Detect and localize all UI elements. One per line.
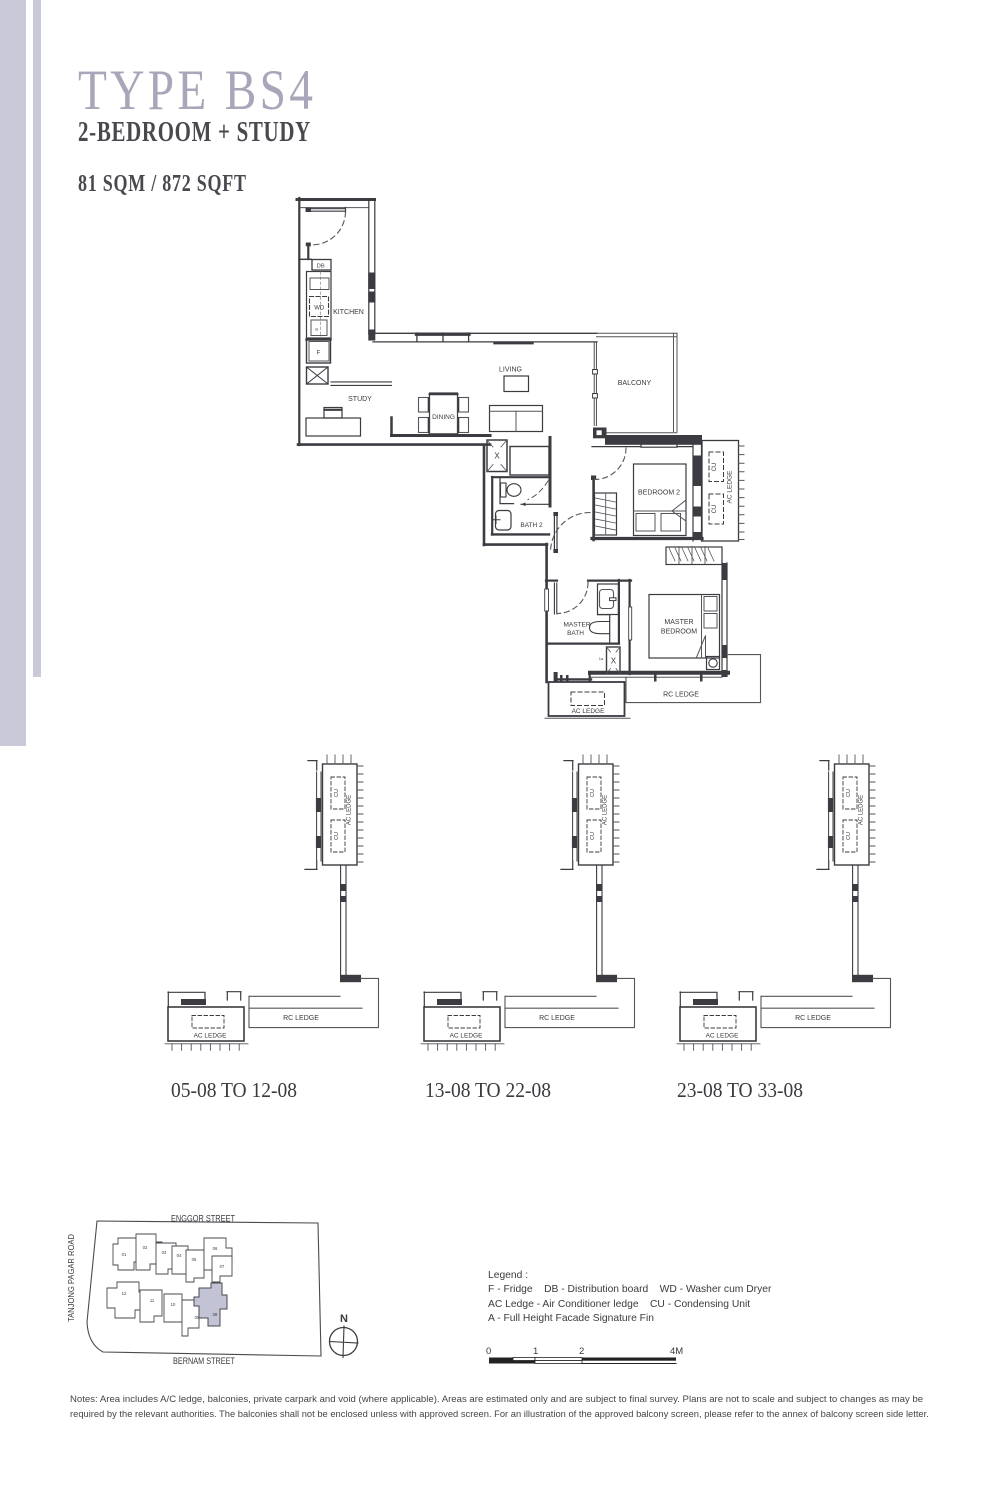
svg-text:DB: DB — [317, 264, 325, 270]
svg-text:0: 0 — [486, 1346, 491, 1357]
svg-text:05: 05 — [192, 1257, 197, 1262]
svg-text:01: 01 — [122, 1252, 127, 1257]
svg-text:07: 07 — [220, 1264, 225, 1269]
svg-text:02: 02 — [143, 1245, 148, 1250]
svg-text:X: X — [611, 657, 617, 666]
svg-text:BERNAM STREET: BERNAM STREET — [173, 1356, 235, 1366]
svg-text:TANJONG PAGAR ROAD: TANJONG PAGAR ROAD — [67, 1234, 76, 1322]
svg-text:4M: 4M — [670, 1346, 683, 1357]
svg-text:05-08 TO 12-08: 05-08 TO 12-08 — [171, 1078, 297, 1102]
svg-text:X: X — [494, 452, 500, 461]
svg-text:MASTER: MASTER — [563, 622, 590, 629]
svg-text:BEDROOM: BEDROOM — [661, 629, 697, 636]
svg-text:DINING: DINING — [432, 414, 455, 421]
svg-text:1: 1 — [533, 1346, 538, 1357]
svg-text:06: 06 — [213, 1246, 218, 1251]
svg-text:a: a — [315, 327, 318, 332]
svg-text:23-08 TO 33-08: 23-08 TO 33-08 — [677, 1078, 803, 1102]
svg-text:STUDY: STUDY — [348, 396, 372, 403]
svg-text:ENGGOR STREET: ENGGOR STREET — [171, 1214, 235, 1224]
svg-text:N: N — [340, 1313, 348, 1325]
svg-text:KITCHEN: KITCHEN — [333, 309, 364, 316]
svg-text:RC LEDGE: RC LEDGE — [663, 692, 699, 699]
svg-text:WD: WD — [314, 305, 325, 311]
svg-text:12: 12 — [122, 1291, 127, 1296]
svg-text:2: 2 — [579, 1346, 584, 1357]
svg-text:BEDROOM 2: BEDROOM 2 — [638, 490, 680, 497]
svg-text:10: 10 — [171, 1302, 176, 1307]
svg-text:08: 08 — [213, 1312, 218, 1317]
svg-text:11: 11 — [150, 1298, 155, 1303]
svg-text:LIVING: LIVING — [499, 367, 522, 374]
svg-text:CU: CU — [712, 505, 718, 514]
svg-text:03: 03 — [162, 1250, 167, 1255]
svg-text:13-08 TO 22-08: 13-08 TO 22-08 — [425, 1078, 551, 1102]
svg-text:05: 05 — [195, 1315, 200, 1320]
svg-text:MASTER: MASTER — [664, 619, 693, 626]
svg-text:1a: 1a — [599, 656, 604, 661]
svg-text:AC LEDGE: AC LEDGE — [727, 470, 734, 504]
svg-text:CU: CU — [712, 463, 718, 472]
svg-text:BALCONY: BALCONY — [618, 380, 652, 387]
svg-text:F: F — [317, 351, 321, 357]
svg-text:AC LEDGE: AC LEDGE — [572, 708, 606, 715]
svg-text:04: 04 — [177, 1253, 182, 1258]
svg-text:BATH 2: BATH 2 — [520, 522, 543, 529]
svg-text:BATH: BATH — [567, 630, 584, 637]
